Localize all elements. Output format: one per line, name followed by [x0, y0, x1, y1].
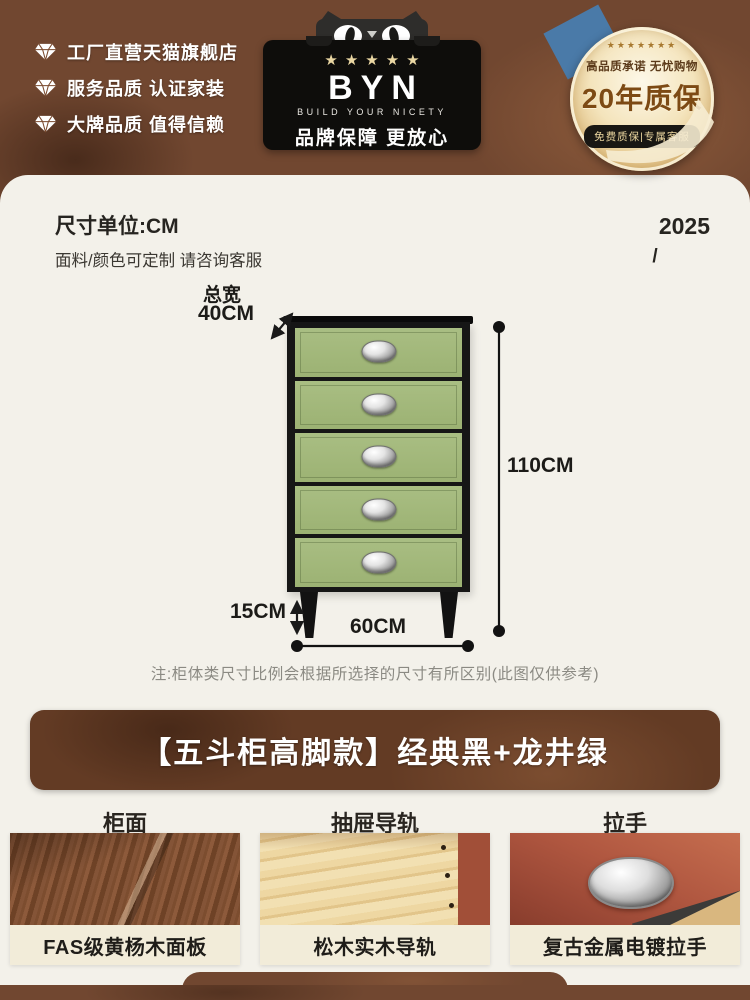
drawer [295, 433, 462, 482]
trust-item: 大牌品质 值得信赖 [34, 110, 225, 138]
year-slash: / [600, 246, 710, 268]
customize-note: 面料/颜色可定制 请咨询客服 [55, 247, 262, 271]
trust-item: 服务品质 认证家装 [34, 74, 225, 102]
brand-promise: 品牌保障 更放心 [295, 123, 449, 150]
drawer-handle-icon [361, 393, 396, 415]
brand-logo: BYN [320, 71, 424, 105]
trust-item-label: 大牌品质 值得信赖 [67, 111, 225, 137]
drawer-handle-icon [361, 446, 396, 468]
bottom-width-label: 60CM [350, 615, 406, 639]
height-dimension-label: 110CM [507, 454, 574, 478]
drawer [295, 538, 462, 587]
feature-card: 松木实木导轨 [260, 833, 490, 965]
medal-warranty-text: 20年质保 [582, 77, 702, 117]
brand-tagline: BUILD YOUR NICETY [297, 107, 447, 117]
next-section-strip [0, 985, 750, 1000]
size-unit-title: 尺寸单位:CM [55, 210, 179, 240]
medal-promise-line: 高品质承诺 无忧购物 [586, 58, 698, 74]
brand-stars-icon: ★★★★★ [317, 51, 426, 69]
product-detail-page: 工厂直营天猫旗舰店 服务品质 认证家装 大牌品质 值得信赖 ★★★★★ BYN … [0, 0, 750, 1000]
screw-dot [441, 845, 446, 850]
section-title-bar: 【五斗柜高脚款】经典黑+龙井绿 [30, 710, 720, 790]
feature-caption: 松木实木导轨 [260, 925, 490, 965]
leg-height-label: 15CM [230, 600, 286, 624]
drawer-handle-icon [361, 551, 396, 573]
drawer-handle-icon [361, 499, 396, 521]
section-title: 【五斗柜高脚款】经典黑+龙井绿 [141, 728, 609, 772]
screw-dot [445, 873, 450, 878]
drawer [295, 328, 462, 377]
trust-item-label: 服务品质 认证家装 [67, 75, 225, 101]
drawer [295, 381, 462, 430]
drawer-slide-image [260, 833, 490, 925]
cabinet-body [287, 322, 470, 592]
drawer [295, 486, 462, 535]
cup-handle-icon [588, 857, 674, 909]
width-dimension-value: 40CM [198, 302, 254, 326]
size-disclaimer-note: 注:柜体类尺寸比例会根据所选择的尺寸有所区别(此图仅供参考) [0, 662, 750, 684]
brand-badge: ★★★★★ BYN BUILD YOUR NICETY 品牌保障 更放心 [263, 40, 481, 150]
feature-caption: 复古金属电镀拉手 [510, 925, 740, 965]
trust-item-label: 工厂直营天猫旗舰店 [67, 39, 238, 65]
feature-card: 复古金属电镀拉手 [510, 833, 740, 965]
drawer-stack [295, 328, 462, 587]
year-label: 2025 [560, 213, 710, 240]
screw-dot [449, 903, 454, 908]
medal-stars-icon: ★★★★★★★ [607, 40, 677, 51]
trust-item: 工厂直营天猫旗舰店 [34, 38, 238, 66]
feature-card: FAS级黄杨木面板 [10, 833, 240, 965]
quality-medal: ★★★★★★★ 高品质承诺 无忧购物 20年质保 免费质保|专属客服 [570, 27, 714, 171]
wood-panel-image [10, 833, 240, 925]
diamond-icon [34, 114, 57, 134]
diamond-icon [34, 42, 57, 62]
handle-image [510, 833, 740, 925]
cat-paw-icon [414, 36, 440, 46]
drawer-handle-icon [361, 341, 396, 363]
cat-paw-icon [306, 36, 332, 46]
medal-service-pill: 免费质保|专属客服 [584, 125, 700, 148]
feature-caption: FAS级黄杨木面板 [10, 925, 240, 965]
diamond-icon [34, 78, 57, 98]
